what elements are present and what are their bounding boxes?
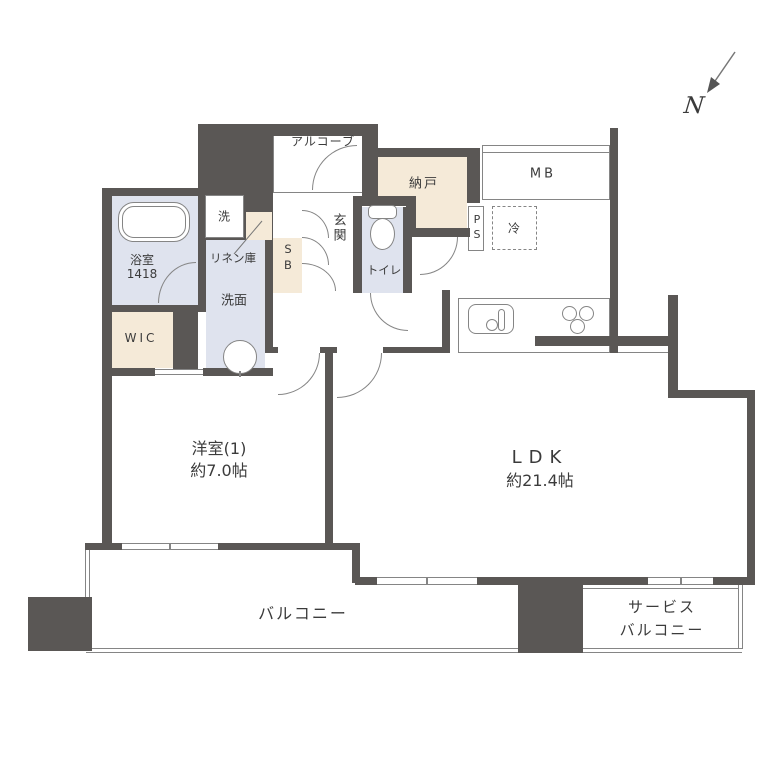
wall (102, 188, 112, 543)
north-label: N (683, 93, 706, 119)
wall (535, 336, 677, 346)
wall (442, 290, 450, 353)
balcony-left-line (85, 549, 86, 597)
wall (218, 543, 355, 550)
refrigerator-label: 冷 (508, 220, 520, 237)
north-arrow-head (707, 77, 720, 93)
wall (102, 368, 155, 376)
bathroom-size: 1418 (127, 267, 158, 281)
toilet-label: トイレ (367, 262, 402, 278)
washbasin-drain (239, 371, 241, 377)
service-balcony-top-line (583, 588, 738, 589)
storage-label: 納戸 (409, 173, 439, 192)
wall (668, 390, 755, 398)
bedroom-label: 洋室(1) 約7.0帖 (190, 438, 247, 482)
bathroom-name: 浴室 (130, 253, 154, 267)
shoe-box-door-arc (302, 237, 329, 265)
balcony-left-line (89, 549, 90, 597)
window-tick (169, 543, 171, 550)
wall (353, 198, 362, 293)
toilet-door-arc (370, 293, 408, 331)
storage-door-arc (420, 237, 458, 275)
bathroom-label: 浴室 1418 (127, 253, 158, 281)
washbasin (223, 340, 257, 374)
wall (383, 347, 450, 353)
room-storage-lower (415, 157, 467, 228)
service-balcony-line2: バルコニー (620, 621, 705, 639)
window-tick (426, 577, 428, 585)
wall (102, 188, 210, 196)
wall (668, 295, 678, 395)
entrance-door-arc (312, 145, 357, 190)
wall (370, 148, 475, 157)
shoe-box-door-arc (302, 210, 329, 238)
kitchen-faucet-lever (498, 309, 505, 331)
floor-plan: アルコーブ 納戸 MB PS 冷 トイレ 玄関 SB 洗 リネン庫 洗面 浴室 … (0, 0, 780, 780)
pipe-space-label: PS (471, 213, 484, 243)
wall (406, 196, 416, 237)
linen-closet-label: リネン庫 (210, 250, 256, 266)
bedroom-area: 約7.0帖 (190, 461, 247, 480)
wall (325, 353, 333, 543)
service-balcony-right-line (742, 585, 743, 649)
toilet-tank (368, 205, 397, 219)
callout-and-compass-graphic (0, 0, 780, 780)
meter-box-label: MB (530, 167, 556, 182)
stove-burner (570, 319, 585, 334)
ldk-area: 約21.4帖 (506, 471, 574, 490)
wall (265, 347, 278, 353)
wall (362, 124, 378, 200)
washer-label: 洗 (218, 208, 230, 225)
wall (467, 148, 480, 203)
kitchen-faucet (486, 319, 498, 331)
kitchen-edge-line (610, 352, 668, 353)
wall (352, 543, 360, 583)
bathtub-inner-line (122, 206, 186, 238)
ldk-label: LDK 約21.4帖 (506, 446, 574, 492)
linen-closet-nook (246, 212, 272, 240)
wall (412, 228, 470, 237)
alcove-edge-line (273, 136, 274, 192)
shoe-box-label: SB (281, 242, 295, 274)
balcony-label: バルコニー (258, 600, 348, 624)
wall (610, 128, 618, 353)
balcony-pillar-left (28, 597, 92, 651)
shoe-box-door-arc (302, 263, 336, 291)
entrance-label: 玄関 (329, 213, 348, 243)
ldk-door-arc (337, 353, 382, 398)
entrance-step-line (273, 192, 362, 193)
meter-box-inner-line (483, 152, 609, 153)
bedroom-door-arc (278, 353, 320, 395)
bathtub (118, 202, 190, 242)
north-arrow-line (713, 52, 735, 84)
balcony-pillar-mid (518, 583, 583, 653)
bedroom-name: 洋室(1) (192, 439, 247, 458)
wall (713, 577, 755, 585)
washroom-label: 洗面 (221, 290, 247, 309)
toilet-bowl (370, 218, 395, 250)
service-balcony-label: サービス バルコニー (620, 596, 705, 642)
balcony-bottom-line (86, 648, 742, 649)
window-tick (680, 577, 682, 585)
alcove-label: アルコーブ (291, 133, 355, 150)
wall (747, 390, 755, 583)
wic-sliding-door (155, 369, 203, 375)
balcony-bottom-line (86, 652, 742, 653)
service-balcony-right-line (738, 585, 739, 649)
service-balcony-line1: サービス (628, 598, 696, 616)
wall (173, 308, 198, 370)
wall (85, 543, 122, 550)
ldk-name: LDK (512, 447, 569, 468)
stove-burner (579, 306, 594, 321)
wic-label: WIC (125, 331, 158, 345)
